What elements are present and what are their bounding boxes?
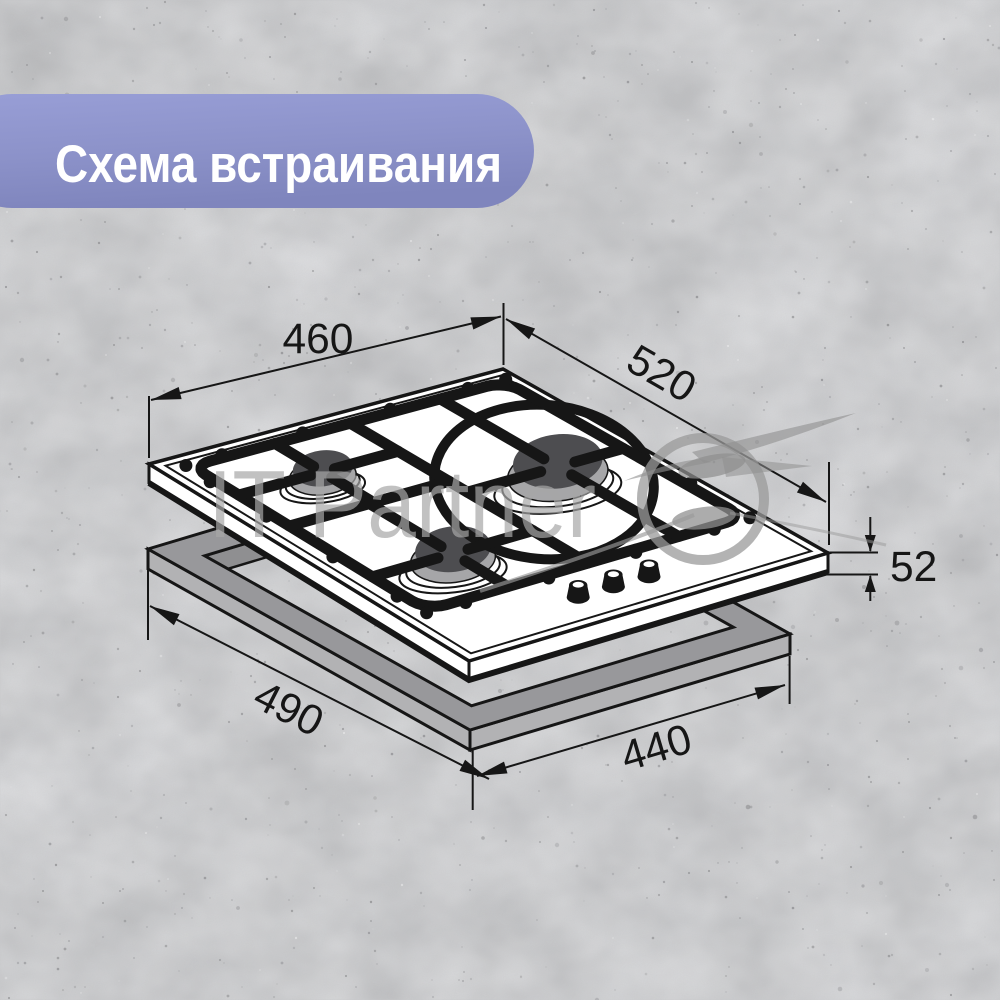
svg-text:Схема встраивания: Схема встраивания	[55, 135, 502, 194]
